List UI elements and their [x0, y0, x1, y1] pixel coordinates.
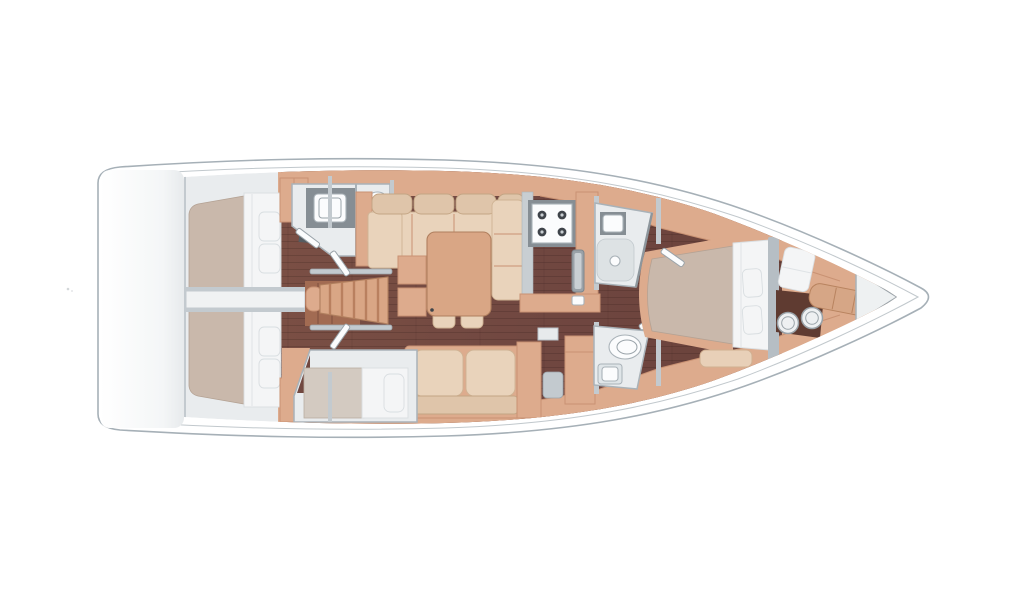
handrail-bottom — [310, 325, 392, 330]
double-bed-mattress — [189, 196, 244, 290]
yacht-floor-plan-canvas — [0, 0, 1024, 600]
island-bed-mattress — [648, 246, 734, 344]
counter-aft-return — [520, 294, 600, 312]
pillow — [259, 359, 280, 388]
shower-drain — [610, 256, 620, 266]
settee-cushion — [414, 350, 463, 396]
cabin-wall — [328, 372, 332, 422]
stern-platform — [100, 170, 184, 428]
sofa-back-cushion — [456, 194, 496, 214]
print-speck — [67, 288, 70, 291]
table-hinge — [430, 308, 434, 312]
settee-seat — [412, 396, 518, 414]
nav-seat — [543, 372, 563, 398]
dining-table — [427, 232, 491, 316]
bench — [700, 350, 752, 367]
bed-linen — [244, 310, 281, 407]
interior — [181, 160, 900, 438]
u-sofa-corner — [368, 212, 402, 268]
pillow — [259, 327, 280, 356]
sink — [603, 215, 623, 232]
bulkhead — [656, 198, 661, 244]
pillow — [742, 305, 763, 334]
bulkhead — [656, 334, 661, 386]
side-cabinet — [398, 288, 426, 316]
single-bed-mattress — [304, 368, 364, 418]
sink-basin — [602, 367, 618, 381]
stool — [778, 313, 799, 334]
settee-lower — [405, 342, 541, 418]
burner-ring — [540, 230, 543, 233]
engine-hatch — [186, 291, 305, 308]
stool — [802, 308, 823, 329]
galley-sink-basin — [575, 253, 582, 289]
sofa-back-cushion — [414, 194, 454, 214]
double-bed-mattress — [189, 310, 244, 404]
sofa-back-cushion — [372, 194, 412, 214]
bed-linen — [244, 193, 281, 290]
pillow — [259, 212, 280, 241]
pillow — [384, 374, 404, 412]
handrail-top — [310, 269, 392, 274]
galley-item — [572, 296, 584, 305]
burner-ring — [560, 230, 563, 233]
pillow — [259, 244, 280, 273]
settee-cushion — [466, 350, 515, 396]
cabin-wall — [328, 176, 332, 228]
toilet — [609, 335, 641, 359]
chaise-right — [492, 200, 524, 300]
settee-end-cabinet — [517, 342, 541, 418]
floor-hatch — [538, 328, 558, 340]
stove-top — [532, 204, 572, 243]
floor-plan-drawing — [0, 0, 1024, 600]
side-cabinet — [398, 256, 426, 284]
burner-ring — [560, 213, 563, 216]
pillow — [742, 268, 763, 297]
berth-cabin-lower — [282, 348, 417, 422]
nav-desk — [565, 336, 595, 404]
burner-ring — [540, 213, 543, 216]
print-speck — [71, 290, 73, 292]
